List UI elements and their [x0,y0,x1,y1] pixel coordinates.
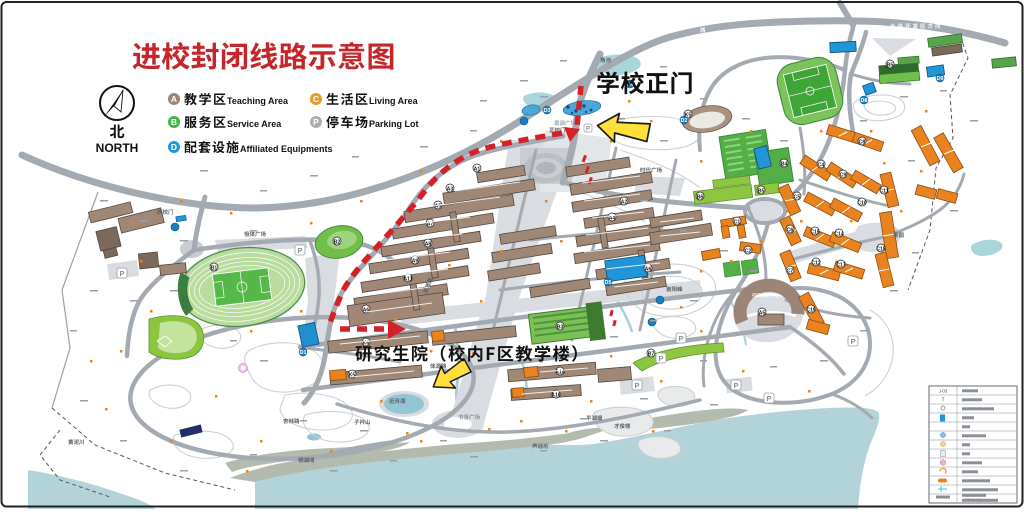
svg-text:C11: C11 [879,189,888,195]
svg-text:Parking Lot: Parking Lot [369,119,419,129]
svg-text:A2: A2 [621,200,628,206]
svg-text:B7: B7 [648,352,655,358]
svg-text:P: P [678,334,683,343]
svg-text:D: D [171,142,177,152]
svg-text:Service Area: Service Area [227,119,282,129]
svg-text:Living Area: Living Area [369,96,419,106]
svg-text:A5: A5 [435,204,442,210]
svg-text:A3: A3 [447,187,454,193]
svg-text:B2: B2 [334,240,341,246]
svg-text:C2: C2 [745,249,752,255]
svg-text:A11: A11 [403,277,412,283]
svg-text:C15: C15 [810,230,820,236]
svg-text:B6: B6 [697,195,704,201]
svg-text:A5: A5 [759,311,766,317]
svg-text:D3: D3 [543,108,550,114]
svg-text:Teaching Area: Teaching Area [227,96,289,106]
svg-text:Affiliated Equipments: Affiliated Equipments [240,144,333,154]
svg-text:C18: C18 [876,247,886,253]
svg-text:D1: D1 [299,350,306,356]
svg-text:C17: C17 [836,263,846,269]
svg-text:C4: C4 [818,163,825,169]
svg-text:A6: A6 [363,308,370,314]
svg-text:J-03: J-03 [939,389,948,394]
svg-text:C: C [313,94,319,104]
svg-text:K5: K5 [349,373,356,379]
svg-text:B5: B5 [758,189,765,195]
svg-text:A9: A9 [412,259,419,265]
svg-text:P: P [586,127,590,133]
svg-text:D5: D5 [604,280,611,286]
svg-text:C1: C1 [734,220,741,226]
svg-text:P: P [658,354,663,363]
svg-text:B1: B1 [211,266,218,272]
svg-text:A: A [171,94,177,104]
svg-text:C10: C10 [857,201,867,207]
svg-text:C9: C9 [840,173,847,179]
svg-text:C7: C7 [787,269,794,275]
svg-text:C8: C8 [859,140,866,146]
svg-text:C12: C12 [811,261,821,267]
svg-text:P: P [766,394,771,403]
svg-text:B4: B4 [781,162,788,168]
svg-text:A1: A1 [474,167,481,173]
svg-text:C19: C19 [806,308,816,314]
svg-text:A6: A6 [645,267,652,273]
svg-text:C6: C6 [787,228,794,234]
svg-text:NORTH: NORTH [96,141,139,155]
svg-text:P: P [119,269,124,278]
svg-text:B3: B3 [557,325,564,331]
svg-text:P: P [634,381,639,390]
svg-text:C5: C5 [794,195,801,201]
svg-text:A16: A16 [551,393,561,399]
svg-text:C14: C14 [834,232,844,238]
svg-text:B5: B5 [887,63,894,69]
svg-text:D8: D8 [860,98,867,104]
svg-text:T: T [941,398,944,404]
svg-text:B: B [171,117,177,127]
svg-text:P: P [313,117,319,127]
svg-text:P: P [850,337,855,346]
svg-text:P: P [733,381,738,390]
svg-text:D2: D2 [680,118,687,124]
svg-text:P: P [297,246,302,255]
svg-text:D9: D9 [936,76,943,82]
svg-text:A8: A8 [425,242,432,248]
